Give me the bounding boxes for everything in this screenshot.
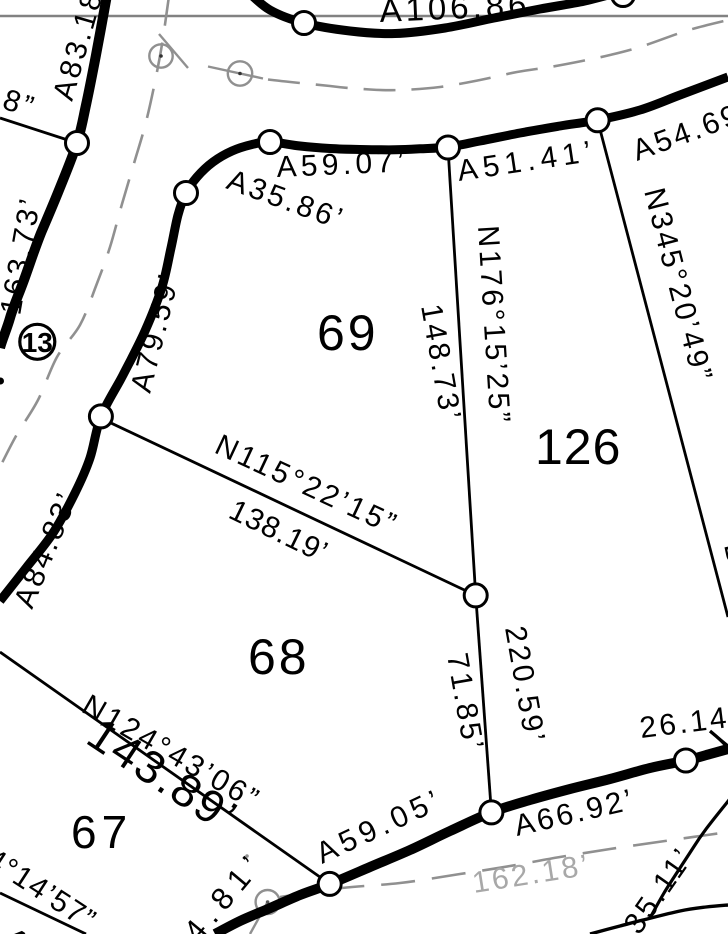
svg-text:126: 126 bbox=[535, 419, 621, 475]
svg-text:68: 68 bbox=[248, 629, 310, 685]
svg-text:69: 69 bbox=[317, 305, 379, 361]
svg-text:13: 13 bbox=[22, 327, 53, 358]
svg-text:67: 67 bbox=[71, 806, 132, 858]
svg-text:A59.07’: A59.07’ bbox=[276, 145, 409, 184]
